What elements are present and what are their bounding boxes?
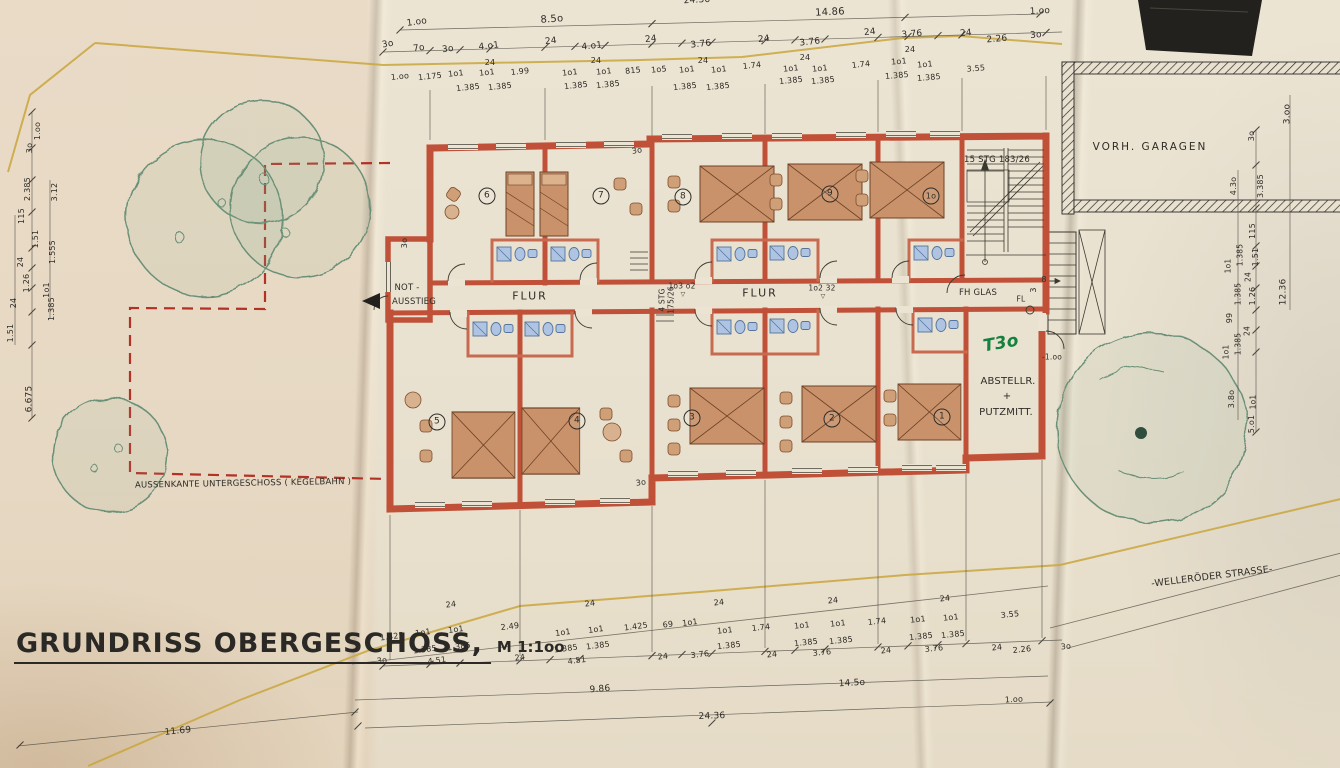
dim: 1o5 xyxy=(651,65,667,75)
dim: 2.26 xyxy=(1012,645,1031,655)
label-abstellraum-3: PUTZMITT. xyxy=(979,408,1033,418)
dim: 3o xyxy=(1248,131,1256,141)
room-number-9: 9 xyxy=(822,186,839,203)
dim: 3 xyxy=(1030,287,1038,292)
dim: 1o1 xyxy=(717,626,733,636)
dim: 4.3o xyxy=(1230,177,1238,195)
level-mark-left-tri: ▽ xyxy=(681,292,686,298)
drawing-title-text: GRUNDRISS OBERGESCHOSS, xyxy=(14,628,491,664)
dim: 3o xyxy=(1060,642,1071,651)
dim: 1.385 xyxy=(811,76,836,86)
dim: 1.oo xyxy=(406,17,427,29)
dim: 3.76 xyxy=(901,30,923,41)
dim: 24 xyxy=(584,599,595,608)
dim: 1o1 xyxy=(830,619,846,629)
dim: 1.385 xyxy=(717,641,742,651)
dim: 6.675 xyxy=(26,386,35,413)
dim: 24 xyxy=(713,598,724,607)
dim: 2.26 xyxy=(986,35,1008,46)
dim: 8 xyxy=(1041,276,1046,284)
dim: 3.76 xyxy=(799,37,821,48)
dim: 24 xyxy=(905,46,916,54)
level-mark-right: 1o2 32 xyxy=(808,284,835,292)
dim: 7o xyxy=(413,44,426,55)
dim: 1o1 xyxy=(1249,395,1257,410)
dim: 1.385 xyxy=(909,632,934,642)
dim: 1o1 xyxy=(711,65,727,75)
dim: 1.oo xyxy=(34,122,42,140)
dim: 1.51 xyxy=(32,230,40,249)
dim: 1o1 xyxy=(479,68,495,78)
label-fl: FL xyxy=(1017,295,1026,303)
room-number-2: 2 xyxy=(824,411,841,428)
dim: 24 xyxy=(645,35,658,45)
dim: 1.385 xyxy=(794,638,819,648)
label-stair-4stg-2: 175/26 xyxy=(667,286,675,314)
dim: 24 xyxy=(445,600,456,609)
drawing-title: GRUNDRISS OBERGESCHOSS,M 1:1oo xyxy=(14,628,565,659)
dim: 3o xyxy=(26,143,34,153)
dim: 1.51 xyxy=(7,324,15,343)
room-number-7: 7 xyxy=(593,188,610,205)
dim: 24 xyxy=(827,596,838,605)
dim: 24 xyxy=(657,652,668,661)
dim: 8.5o xyxy=(540,14,563,26)
dim: 24 xyxy=(10,298,18,309)
dim: 24 xyxy=(698,57,709,65)
dim: 115 xyxy=(18,208,26,224)
dim: 1o1 xyxy=(682,618,699,628)
dim: 1o1 xyxy=(1224,259,1232,274)
dim: 24 xyxy=(591,57,602,65)
dim: 3.76 xyxy=(690,650,709,660)
dim: 1o1 xyxy=(917,60,933,69)
dim: 4.o1 xyxy=(581,41,602,52)
dim: 24 xyxy=(1243,326,1251,336)
dim: 1o1 xyxy=(588,625,605,635)
room-number-3: 3 xyxy=(684,410,701,427)
label-strasse: -WELLERÖDER STRASSE- xyxy=(1151,565,1273,589)
dim: 1o1 xyxy=(783,64,799,74)
dim: 3o xyxy=(442,45,455,56)
level-mark-right-tri: ▽ xyxy=(821,294,826,300)
dim: 3.55 xyxy=(1000,610,1019,620)
dim: 24 xyxy=(545,37,558,47)
dim: 3o xyxy=(1030,31,1042,41)
room-number-5: 5 xyxy=(429,414,446,431)
dim: 9.86 xyxy=(589,685,610,695)
dim: 1.385 xyxy=(673,82,698,92)
dim: 1o1 xyxy=(1222,345,1230,360)
label-stair-15stg: 15 STG 183/26 xyxy=(964,156,1030,165)
dim: 3.385 xyxy=(1257,174,1265,198)
dim: 1.51 xyxy=(1252,248,1260,267)
note-t30-green: T3o xyxy=(982,333,1020,356)
dim: 1o1 xyxy=(562,68,578,78)
dim: 1.74 xyxy=(751,623,770,633)
dim: 1.385 xyxy=(706,82,731,92)
dim: 11.69 xyxy=(164,726,192,738)
label-flur-left: FLUR xyxy=(512,291,548,302)
dim: 24 xyxy=(766,650,777,659)
dim: 1o1 xyxy=(812,64,828,74)
dim: 1.175 xyxy=(418,72,443,82)
dim: 115 xyxy=(1249,223,1257,239)
dim: 1.385 xyxy=(1234,283,1242,305)
scanned-floorplan-sheet: 24.361.oo8.5o14.861.oo3o7o3o4.o1244.o124… xyxy=(0,0,1340,768)
level-mark-minus100: -1.oo xyxy=(1042,353,1062,361)
label-not-ausstieg-2: AUSSTIEG xyxy=(392,298,436,307)
dim: 24 xyxy=(960,29,973,39)
dim: 3.8o xyxy=(1228,390,1236,408)
dim: 1.385 xyxy=(456,83,481,93)
dim: 1o1 xyxy=(910,615,926,625)
dim: 1.385 xyxy=(1236,244,1244,266)
dim: 1.26 xyxy=(1249,287,1257,306)
dim: 14.86 xyxy=(815,7,845,19)
dim: 24 xyxy=(1244,272,1252,282)
dim: 1.385 xyxy=(488,82,513,92)
dim: 1o1 xyxy=(679,65,695,75)
label-fh-glas: FH GLAS xyxy=(959,289,997,298)
dim: 5.o1 xyxy=(1248,415,1256,433)
room-number-1: 1 xyxy=(934,409,951,426)
drawing-scale: M 1:1oo xyxy=(497,638,565,656)
dim: 24 xyxy=(864,28,877,38)
dim: 1.74 xyxy=(742,61,761,71)
dim: 3o xyxy=(631,146,643,156)
label-abstellraum-1: ABSTELLR. xyxy=(980,377,1035,387)
room-number-6: 6 xyxy=(479,188,496,205)
label-not-ausstieg-1: NOT - xyxy=(394,284,419,293)
dim: 2.385 xyxy=(24,177,32,201)
dim: 69 xyxy=(662,620,673,629)
dim: 24 xyxy=(17,257,25,268)
dim: 1.385 xyxy=(779,76,804,86)
dim: 1.425 xyxy=(624,622,649,633)
dim: 1.385 xyxy=(917,73,942,83)
dim: 24.36 xyxy=(698,712,725,722)
room-number-10: 1o xyxy=(923,188,940,205)
dim: 1.555 xyxy=(49,240,57,264)
dim: 3.oo xyxy=(1284,104,1293,124)
dim: 1o1 xyxy=(43,282,51,298)
dim: 1.74 xyxy=(851,60,870,70)
dim: 1.385 xyxy=(564,81,589,91)
dim: 12.36 xyxy=(1280,279,1289,306)
dim: 3.55 xyxy=(966,64,985,74)
dim: 24 xyxy=(485,59,496,67)
dim: 14.5o xyxy=(839,679,866,689)
dim: 1o1 xyxy=(794,621,810,631)
dim: 24 xyxy=(880,646,891,655)
dim: 1o1 xyxy=(943,613,959,623)
dim: 1.oo xyxy=(1030,7,1051,17)
dim: 99 xyxy=(1226,313,1234,324)
label-flur-right: FLUR xyxy=(742,288,778,299)
dim: 1o1 xyxy=(891,57,907,66)
dim: 3o xyxy=(635,478,646,487)
label-abstellraum-2: + xyxy=(1003,392,1012,402)
dim: 1.385 xyxy=(885,71,910,81)
dim: 1.385 xyxy=(1234,333,1242,355)
dim: 1.385 xyxy=(829,636,854,646)
dim: 3.76 xyxy=(812,648,831,658)
dim: 4.o1 xyxy=(478,41,499,52)
dim: 24 xyxy=(939,594,950,603)
dim: 1.99 xyxy=(510,67,529,77)
dim: 1.26 xyxy=(23,274,31,293)
room-number-8: 8 xyxy=(675,189,692,206)
dim: 1.385 xyxy=(941,630,966,640)
dim: 1.oo xyxy=(1005,696,1024,705)
dim: 24.36 xyxy=(683,0,710,6)
dim: 3.76 xyxy=(690,39,712,50)
dim: 1.oo xyxy=(391,72,410,82)
label-vorh-garagen: VORH. GARAGEN xyxy=(1093,142,1208,153)
dim: 815 xyxy=(625,66,642,76)
dim: 1.74 xyxy=(867,617,886,627)
label-aussenkante: AUSSENKANTE UNTERGESCHOSS ( KEGELBAHN ) xyxy=(135,478,351,490)
dim: 1.385 xyxy=(586,641,611,652)
dim: 1.385 xyxy=(48,297,56,321)
room-number-4: 4 xyxy=(569,413,586,430)
dim: 1o1 xyxy=(448,69,464,79)
dim: 1.385 xyxy=(596,80,621,90)
label-stair-4stg: 4 STG xyxy=(658,288,666,311)
dim: 3o xyxy=(401,238,409,248)
dim: 3o xyxy=(381,40,394,51)
dim: 24 xyxy=(800,54,811,62)
dim: 3.76 xyxy=(924,644,943,654)
dim: 24 xyxy=(758,35,771,45)
dim: 3.12 xyxy=(51,183,59,202)
dim: 4.51 xyxy=(567,656,586,666)
dim: 1o1 xyxy=(596,67,612,77)
dim: 24 xyxy=(991,643,1002,652)
